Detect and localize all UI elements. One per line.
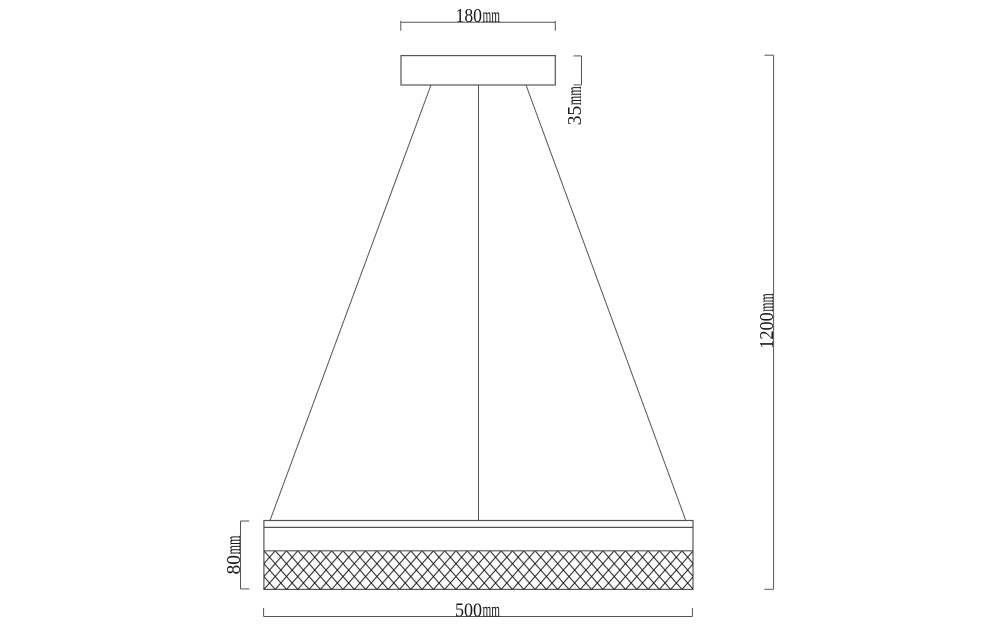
svg-text:180mm: 180mm	[456, 5, 501, 27]
svg-text:1200mm: 1200mm	[756, 293, 778, 349]
svg-text:80mm: 80mm	[223, 535, 245, 574]
svg-text:35mm: 35mm	[564, 86, 586, 125]
svg-text:500mm: 500mm	[455, 599, 500, 621]
